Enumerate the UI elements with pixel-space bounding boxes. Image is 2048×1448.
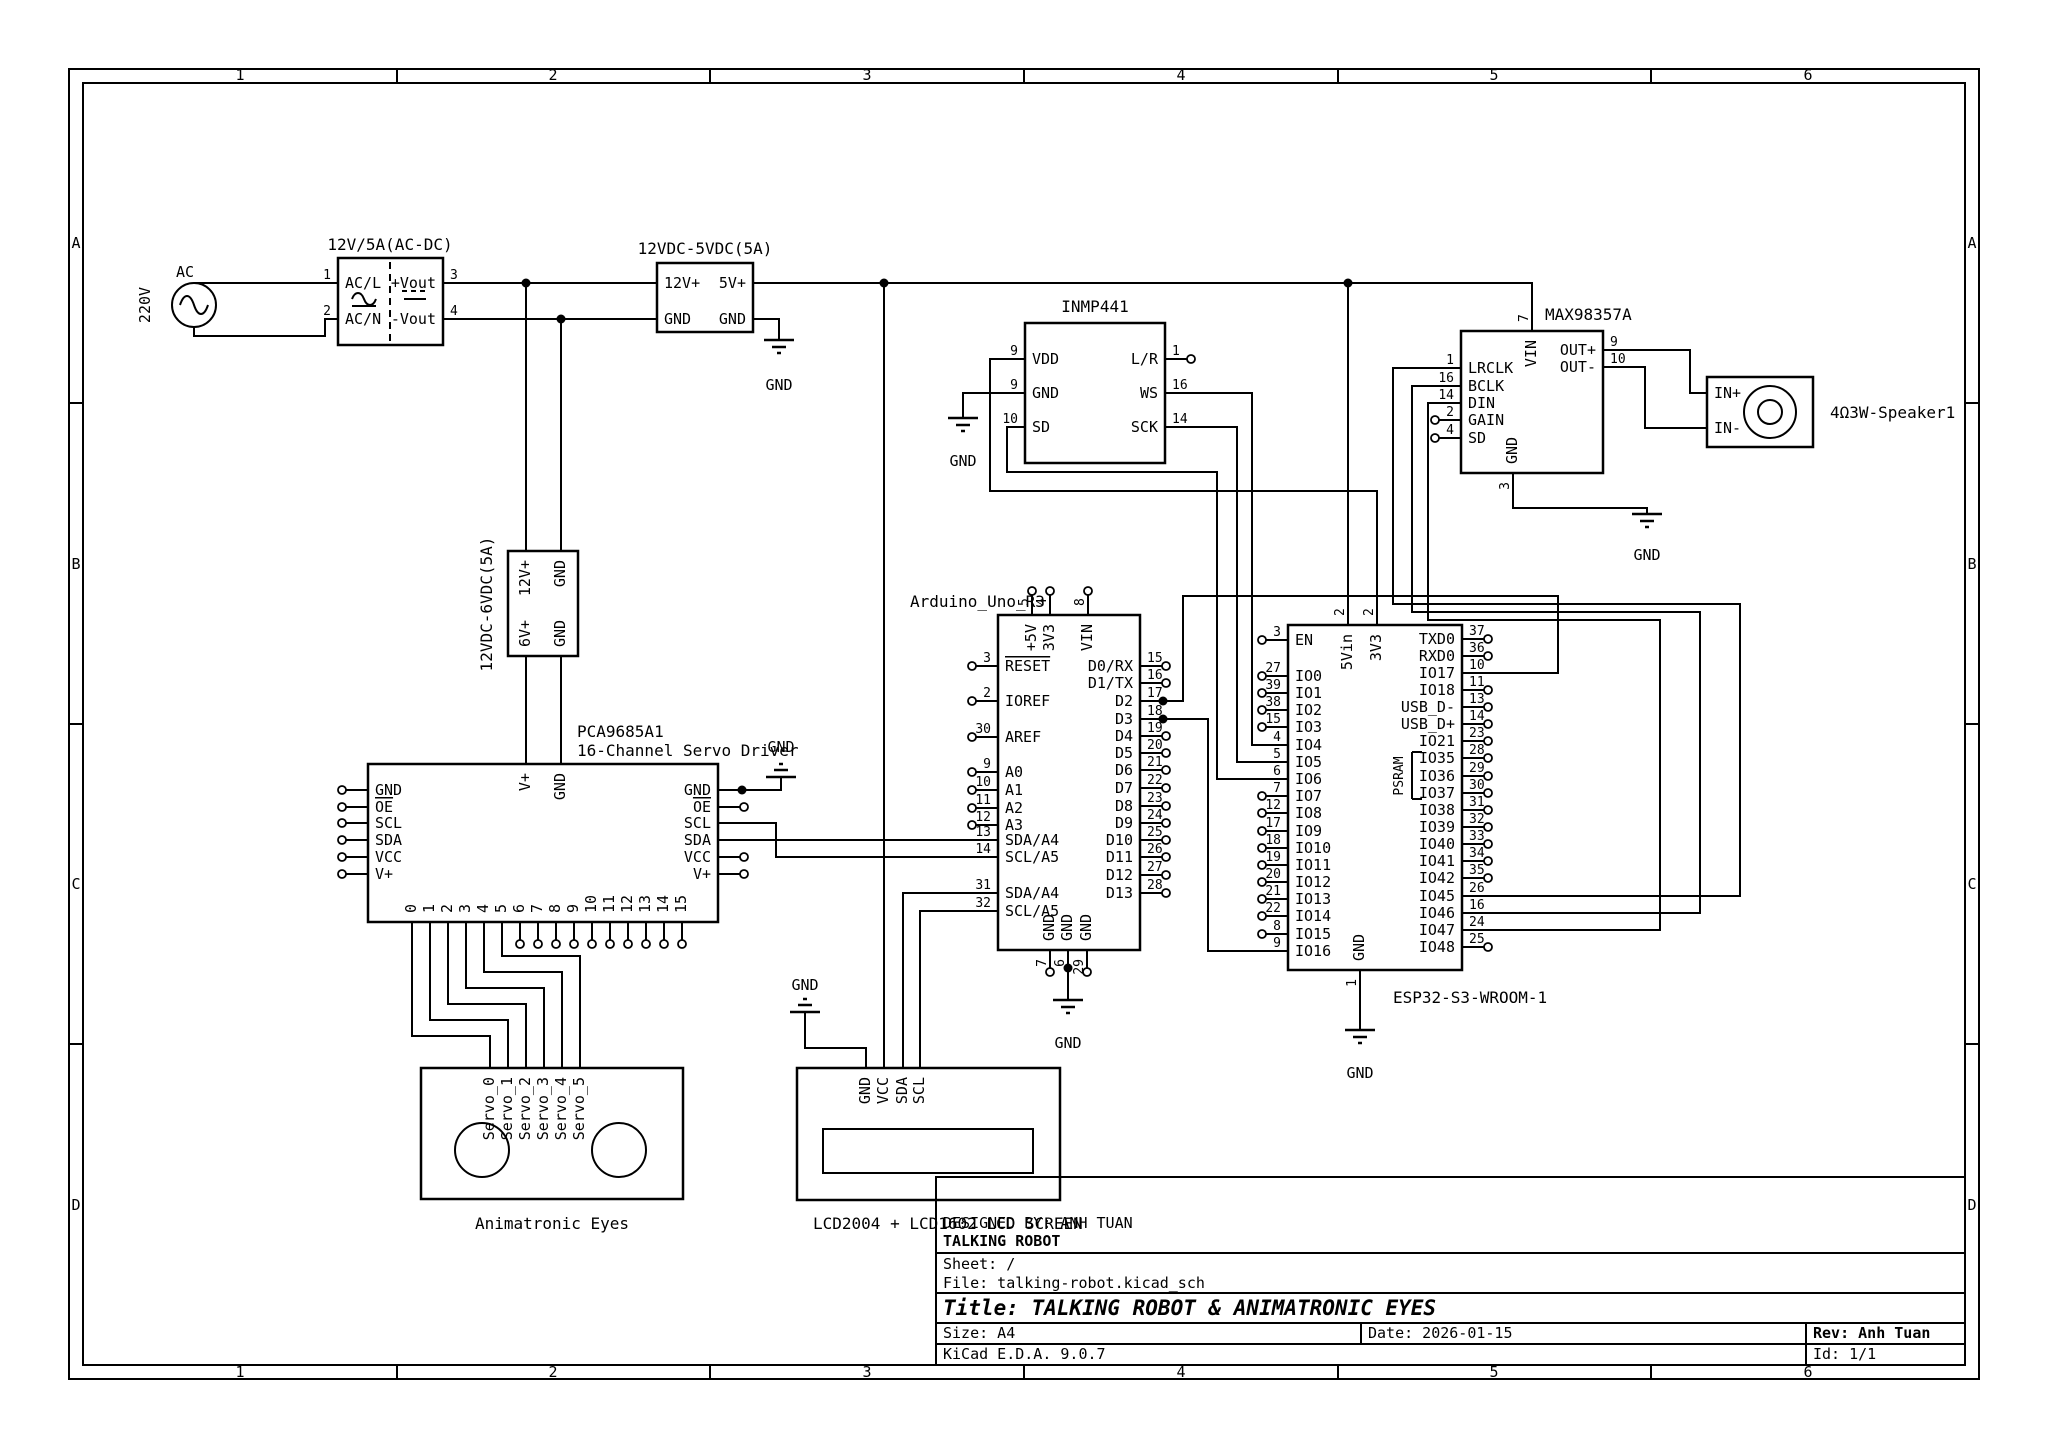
- pin-esp32-s3-wroom-1: IO47: [1419, 921, 1455, 939]
- pin-inmp441-microphone: GND: [1032, 384, 1059, 402]
- pin-esp32-s3-wroom-1: IO13: [1295, 890, 1331, 908]
- border-row-label: B: [1967, 555, 1976, 573]
- unconnected-pin-marker: [1162, 766, 1170, 774]
- pin-arduino-uno-r3: D6: [1115, 761, 1133, 779]
- pin-esp32-s3-wroom-1: IO14: [1295, 907, 1331, 925]
- unconnected-pin-marker: [1084, 587, 1092, 595]
- unconnected-pin-marker: [1162, 853, 1170, 861]
- pin-number: 15: [1265, 712, 1281, 727]
- pin-number: 3: [1273, 625, 1281, 640]
- pin-esp32-s3-wroom-1: IO46: [1419, 904, 1455, 922]
- pin-buck-12v-5v: GND: [719, 310, 746, 328]
- acdc-sine-glyph: [352, 293, 376, 305]
- border-col-label: 3: [862, 66, 871, 84]
- pin-esp32-s3-wroom-1: IO38: [1419, 801, 1455, 819]
- pin-pca9685-servo-driver: SDA: [684, 831, 711, 849]
- unconnected-pin-marker: [1484, 772, 1492, 780]
- pin-arduino-uno-r3: A2: [1005, 799, 1023, 817]
- pin-number: 29: [1469, 761, 1485, 776]
- border-col-label: 1: [235, 66, 244, 84]
- unconnected-pin-marker: [338, 819, 346, 827]
- pin-number: 18: [1265, 833, 1281, 848]
- component-title-buck-12v-5v: 12VDC-5VDC(5A): [638, 239, 773, 258]
- pin-number: 7: [1517, 314, 1532, 322]
- border-row-label: A: [1967, 234, 1976, 252]
- pin-arduino-uno-r3: D9: [1115, 814, 1133, 832]
- pin-arduino-uno-r3: SDA/A4: [1005, 884, 1059, 902]
- right-eye: [592, 1123, 646, 1177]
- pin-esp32-s3-wroom-1: 5Vin: [1338, 634, 1356, 670]
- pin-esp32-s3-wroom-1: IO37: [1419, 784, 1455, 802]
- pin-number: 16: [1172, 378, 1188, 393]
- pin-esp32-s3-wroom-1: IO10: [1295, 839, 1331, 857]
- pin-pca9685-servo-driver: 11: [600, 895, 618, 913]
- pin-number: 8: [1073, 598, 1088, 606]
- title-block-comments: DESIGNED BY: ANH TUAN TALKING ROBOT: [937, 1178, 1964, 1252]
- border-col-label: 3: [862, 1363, 871, 1381]
- wire: [920, 911, 998, 1068]
- component-title-buck-12v-6v: 12VDC-6VDC(5A): [477, 537, 496, 672]
- pin-esp32-s3-wroom-1: IO1: [1295, 684, 1322, 702]
- unconnected-pin-marker: [1028, 587, 1036, 595]
- pin-buck-12v-5v: 5V+: [719, 274, 746, 292]
- border-row-label: A: [71, 234, 80, 252]
- pin-esp32-s3-wroom-1: IO40: [1419, 835, 1455, 853]
- pin-number: 24: [1147, 808, 1163, 823]
- pin-number: 8: [1273, 919, 1281, 934]
- pin-buck-12v-6v: GND: [551, 620, 569, 647]
- lcd-glass: [823, 1129, 1033, 1173]
- pin-lcd-screen-module: VCC: [874, 1077, 892, 1104]
- pin-esp32-s3-wroom-1: IO9: [1295, 822, 1322, 840]
- pin-number: 26: [1469, 881, 1485, 896]
- wire: [753, 319, 779, 340]
- pin-number: 16: [1438, 371, 1454, 386]
- wire: [1412, 386, 1700, 913]
- pin-number: 23: [1469, 726, 1485, 741]
- pin-esp32-s3-wroom-1: GND: [1350, 934, 1368, 961]
- pin-esp32-s3-wroom-1: IO35: [1419, 749, 1455, 767]
- unconnected-pin-marker: [552, 940, 560, 948]
- component-title-max98357a-amplifier: MAX98357A: [1545, 305, 1632, 324]
- pin-number: 24: [1469, 915, 1485, 930]
- pin-number: 4: [1446, 423, 1454, 438]
- pin-number: 1: [1446, 353, 1454, 368]
- pin-arduino-uno-r3: D2: [1115, 692, 1133, 710]
- pin-number: 36: [1469, 641, 1485, 656]
- pin-inmp441-microphone: SCK: [1131, 418, 1158, 436]
- file-name: File: talking-robot.kicad_sch: [943, 1274, 1958, 1293]
- pin-number: 17: [1265, 816, 1281, 831]
- pin-number: 20: [1147, 738, 1163, 753]
- pin-esp32-s3-wroom-1: IO21: [1419, 732, 1455, 750]
- designed-by: DESIGNED BY: ANH TUAN: [943, 1214, 1958, 1232]
- pin-esp32-s3-wroom-1: IO16: [1295, 942, 1331, 960]
- unconnected-pin-marker: [588, 940, 596, 948]
- pin-number: 32: [975, 896, 991, 911]
- unconnected-pin-marker: [1484, 823, 1492, 831]
- unconnected-pin-marker: [1162, 871, 1170, 879]
- pin-acdc-converter: AC/L: [345, 274, 381, 292]
- border-col-label: 5: [1489, 66, 1498, 84]
- sheet-id: Id: 1/1: [1805, 1345, 1964, 1364]
- pin-number: 11: [1469, 675, 1485, 690]
- unconnected-pin-marker: [1046, 968, 1054, 976]
- pin-pca9685-servo-driver: V+: [693, 865, 711, 883]
- unconnected-pin-marker: [338, 853, 346, 861]
- junction-dot: [557, 315, 566, 324]
- date: Date: 2026-01-15: [1360, 1324, 1805, 1343]
- pin-number: 23: [1147, 791, 1163, 806]
- pin-acdc-converter: -Vout: [391, 310, 436, 328]
- title-block-size-row: Size: A4 Date: 2026-01-15 Rev: Anh Tuan: [937, 1322, 1964, 1343]
- pin-number: 31: [975, 878, 991, 893]
- pin-number: 33: [1469, 829, 1485, 844]
- pin-esp32-s3-wroom-1: EN: [1295, 631, 1313, 649]
- pin-number: 9: [1273, 936, 1281, 951]
- pin-number: 13: [975, 825, 991, 840]
- pin-pca9685-servo-driver: 1: [420, 904, 438, 913]
- pin-animatronic-eyes: Servo_3: [534, 1077, 552, 1140]
- pin-number: 19: [1265, 850, 1281, 865]
- gnd-label: GND: [767, 738, 794, 756]
- pin-number: 30: [1469, 778, 1485, 793]
- pin-number: 10: [975, 775, 991, 790]
- pin-number: 1: [323, 268, 331, 283]
- pin-number: 14: [1438, 388, 1454, 403]
- pin-number: 28: [1147, 878, 1163, 893]
- pin-pca9685-servo-driver: VCC: [684, 848, 711, 866]
- pin-buck-12v-5v: 12V+: [664, 274, 700, 292]
- pin-arduino-uno-r3: VIN: [1078, 624, 1096, 651]
- unconnected-pin-marker: [1162, 784, 1170, 792]
- component-title-animatronic-eyes: Animatronic Eyes: [475, 1214, 629, 1233]
- pin-number: 14: [1172, 412, 1188, 427]
- pin-lcd-screen-module: SDA: [893, 1077, 911, 1104]
- pin-animatronic-eyes: Servo_0: [480, 1077, 498, 1140]
- component-title-speaker-4ohm-3w: 4Ω3W-Speaker1: [1830, 403, 1955, 422]
- unconnected-pin-marker: [1162, 819, 1170, 827]
- border-col-label: 2: [548, 66, 557, 84]
- pin-esp32-s3-wroom-1: IO39: [1419, 818, 1455, 836]
- unconnected-pin-marker: [1484, 857, 1492, 865]
- unconnected-pin-marker: [1187, 355, 1195, 363]
- pin-max98357a-amplifier: OUT+: [1560, 341, 1596, 359]
- unconnected-pin-marker: [1484, 806, 1492, 814]
- pin-max98357a-amplifier: SD: [1468, 429, 1486, 447]
- pin-acdc-converter: +Vout: [391, 274, 436, 292]
- unconnected-pin-marker: [1484, 789, 1492, 797]
- pin-number: 22: [1147, 773, 1163, 788]
- component-title-esp32-s3-wroom-1: ESP32-S3-WROOM-1: [1393, 988, 1547, 1007]
- wire: [718, 777, 781, 790]
- unconnected-pin-marker: [534, 940, 542, 948]
- title-block-tool-row: KiCad E.D.A. 9.0.7 Id: 1/1: [937, 1343, 1964, 1364]
- pin-pca9685-servo-driver: 14: [654, 895, 672, 913]
- pin-pca9685-servo-driver: 5: [492, 904, 510, 913]
- speaker-cone-inner: [1758, 400, 1782, 424]
- unconnected-pin-marker: [1484, 754, 1492, 762]
- pin-arduino-uno-r3: D0/RX: [1088, 657, 1133, 675]
- border-row-label: C: [71, 875, 80, 893]
- pin-number: 2: [323, 304, 331, 319]
- unconnected-pin-marker: [660, 940, 668, 948]
- pin-number: 21: [1147, 755, 1163, 770]
- paper-size: Size: A4: [937, 1324, 1360, 1343]
- pin-max98357a-amplifier: OUT-: [1560, 358, 1596, 376]
- pin-esp32-s3-wroom-1: IO0: [1295, 667, 1322, 685]
- unconnected-pin-marker: [1046, 587, 1054, 595]
- pin-inmp441-microphone: SD: [1032, 418, 1050, 436]
- wire: [430, 922, 508, 1068]
- unconnected-pin-marker: [624, 940, 632, 948]
- pin-number: 34: [1469, 846, 1485, 861]
- pin-number: 4: [1035, 598, 1050, 606]
- pin-pca9685-servo-driver: 4: [474, 904, 492, 913]
- unconnected-pin-marker: [516, 940, 524, 948]
- pin-speaker-4ohm-3w: IN+: [1714, 384, 1741, 402]
- pin-animatronic-eyes: Servo_4: [552, 1077, 570, 1140]
- unconnected-pin-marker: [968, 733, 976, 741]
- pin-pca9685-servo-driver: SDA: [375, 831, 402, 849]
- pin-number: 12: [1265, 798, 1281, 813]
- pin-animatronic-eyes: Servo_5: [570, 1077, 588, 1140]
- gnd-label: GND: [1054, 1034, 1081, 1052]
- pin-esp32-s3-wroom-1: IO18: [1419, 681, 1455, 699]
- wire: [448, 922, 526, 1068]
- pin-number: 21: [1265, 884, 1281, 899]
- pin-number: 14: [975, 842, 991, 857]
- pin-acdc-converter: AC/N: [345, 310, 381, 328]
- wire: [412, 922, 490, 1068]
- pin-esp32-s3-wroom-1: IO36: [1419, 767, 1455, 785]
- pin-esp32-s3-wroom-1: RXD0: [1419, 647, 1455, 665]
- pin-pca9685-servo-driver: 2: [438, 904, 456, 913]
- border-row-label: D: [71, 1196, 80, 1214]
- pin-esp32-s3-wroom-1: TXD0: [1419, 630, 1455, 648]
- pin-pca9685-servo-driver: 7: [528, 904, 546, 913]
- unconnected-pin-marker: [1484, 737, 1492, 745]
- pin-number: 10: [1469, 658, 1485, 673]
- unconnected-pin-marker: [1258, 723, 1266, 731]
- unconnected-pin-marker: [1258, 912, 1266, 920]
- gnd-label: GND: [765, 376, 792, 394]
- unconnected-pin-marker: [338, 803, 346, 811]
- component-title-acdc-converter: 12V/5A(AC-DC): [327, 235, 452, 254]
- pin-number: 11: [975, 793, 991, 808]
- pin-number: 32: [1469, 812, 1485, 827]
- pin-inmp441-microphone: VDD: [1032, 350, 1059, 368]
- unconnected-pin-marker: [606, 940, 614, 948]
- border-row-label: B: [71, 555, 80, 573]
- pin-pca9685-servo-driver: GND: [684, 781, 711, 799]
- pin-esp32-s3-wroom-1: IO15: [1295, 925, 1331, 943]
- pin-number: 7: [1273, 781, 1281, 796]
- pin-number: 10: [1610, 352, 1626, 367]
- pin-esp32-s3-wroom-1: IO12: [1295, 873, 1331, 891]
- pin-pca9685-servo-driver: SCL: [684, 814, 711, 832]
- unconnected-pin-marker: [1162, 679, 1170, 687]
- pin-number: 6: [1273, 764, 1281, 779]
- wire: [903, 893, 998, 1068]
- border-row-label: D: [1967, 1196, 1976, 1214]
- junction-dot: [880, 279, 889, 288]
- pin-number: 4: [1273, 730, 1281, 745]
- pin-arduino-uno-r3: D8: [1115, 797, 1133, 815]
- pin-arduino-uno-r3: SCL/A5: [1005, 848, 1059, 866]
- pin-buck-12v-5v: GND: [664, 310, 691, 328]
- pin-number: 27: [1265, 661, 1281, 676]
- junction-dot: [1064, 964, 1073, 973]
- pin-number: 2: [1333, 608, 1348, 616]
- unconnected-pin-marker: [1484, 874, 1492, 882]
- pin-esp32-s3-wroom-1: IO4: [1295, 736, 1322, 754]
- gnd-label: GND: [1346, 1064, 1373, 1082]
- pin-arduino-uno-r3: A0: [1005, 763, 1023, 781]
- pin-arduino-uno-r3: D7: [1115, 779, 1133, 797]
- unconnected-pin-marker: [968, 662, 976, 670]
- unconnected-pin-marker: [1258, 636, 1266, 644]
- title-block: DESIGNED BY: ANH TUAN TALKING ROBOT Shee…: [935, 1176, 1966, 1366]
- pin-pca9685-servo-driver: 9: [564, 904, 582, 913]
- pin-esp32-s3-wroom-1: IO41: [1419, 852, 1455, 870]
- pin-arduino-uno-r3: 3V3: [1040, 624, 1058, 651]
- pin-number: 30: [975, 722, 991, 737]
- unconnected-pin-marker: [642, 940, 650, 948]
- pin-pca9685-servo-driver: V+: [375, 865, 393, 883]
- unconnected-pin-marker: [1162, 749, 1170, 757]
- unconnected-pin-marker: [338, 836, 346, 844]
- pin-max98357a-amplifier: LRCLK: [1468, 359, 1513, 377]
- pin-number: 10: [1002, 412, 1018, 427]
- pin-number: 5: [1017, 598, 1032, 606]
- pin-arduino-uno-r3: GND: [1077, 914, 1095, 941]
- pin-esp32-s3-wroom-1: IO3: [1295, 718, 1322, 736]
- border-col-label: 4: [1176, 66, 1185, 84]
- pin-pca9685-servo-driver: 10: [582, 895, 600, 913]
- junction-dot: [1159, 715, 1168, 724]
- pin-number: 37: [1469, 624, 1485, 639]
- unconnected-pin-marker: [338, 786, 346, 794]
- component-title-inmp441-microphone: INMP441: [1061, 297, 1128, 316]
- pin-arduino-uno-r3: D11: [1106, 848, 1133, 866]
- pin-esp32-s3-wroom-1: USB_D+: [1401, 715, 1455, 733]
- pin-number: 35: [1469, 863, 1485, 878]
- pin-number: 4: [450, 304, 458, 319]
- schematic-sheet: 112233445566AABBCCDD12V/5A(AC-DC)AC/L1AC…: [0, 0, 2048, 1448]
- pin-number: 27: [1147, 860, 1163, 875]
- border-row-label: C: [1967, 875, 1976, 893]
- pin-esp32-s3-wroom-1: IO48: [1419, 938, 1455, 956]
- speaker-cone-outer: [1744, 386, 1796, 438]
- unconnected-pin-marker: [740, 803, 748, 811]
- unconnected-pin-marker: [1083, 968, 1091, 976]
- pin-arduino-uno-r3: SDA/A4: [1005, 831, 1059, 849]
- pin-esp32-s3-wroom-1: IO17: [1419, 664, 1455, 682]
- wire: [1513, 473, 1647, 514]
- pin-arduino-uno-r3: IOREF: [1005, 692, 1050, 710]
- border-col-label: 2: [548, 1363, 557, 1381]
- pin-max98357a-amplifier: DIN: [1468, 394, 1495, 412]
- unconnected-pin-marker: [1162, 802, 1170, 810]
- pin-pca9685-servo-driver: GND: [375, 781, 402, 799]
- pin-pca9685-servo-driver: 15: [672, 895, 690, 913]
- pin-pca9685-servo-driver: V+: [516, 773, 534, 791]
- gnd-label: GND: [1633, 546, 1660, 564]
- unconnected-pin-marker: [338, 870, 346, 878]
- pin-inmp441-microphone: WS: [1140, 384, 1158, 402]
- sheet-title: Title: TALKING ROBOT & ANIMATRONIC EYES: [937, 1292, 1964, 1322]
- pin-number: 16: [1469, 898, 1485, 913]
- pin-esp32-s3-wroom-1: IO5: [1295, 753, 1322, 771]
- unconnected-pin-marker: [1484, 703, 1492, 711]
- pin-number: 15: [1147, 651, 1163, 666]
- unconnected-pin-marker: [678, 940, 686, 948]
- pin-pca9685-servo-driver: 3: [456, 904, 474, 913]
- pin-number: 28: [1469, 743, 1485, 758]
- pin-number: 26: [1147, 842, 1163, 857]
- pin-esp32-s3-wroom-1: 3V3: [1367, 634, 1385, 661]
- pin-lcd-screen-module: SCL: [910, 1077, 928, 1104]
- unconnected-pin-marker: [968, 697, 976, 705]
- pin-number: 9: [1610, 335, 1618, 350]
- unconnected-pin-marker: [1258, 930, 1266, 938]
- pin-pca9685-servo-driver: 8: [546, 904, 564, 913]
- border-col-label: 1: [235, 1363, 244, 1381]
- pin-arduino-uno-r3: A1: [1005, 781, 1023, 799]
- pin-esp32-s3-wroom-1: IO6: [1295, 770, 1322, 788]
- sheet-path: Sheet: /: [943, 1255, 1958, 1274]
- pin-inmp441-microphone: L/R: [1131, 350, 1159, 368]
- pin-number: 22: [1265, 901, 1281, 916]
- pin-number: 25: [1147, 825, 1163, 840]
- pin-number: 9: [1010, 344, 1018, 359]
- pin-number: 5: [1273, 747, 1281, 762]
- pin-arduino-uno-r3: RESET: [1005, 657, 1050, 675]
- pin-esp32-s3-wroom-1: IO7: [1295, 787, 1322, 805]
- wire: [805, 1012, 866, 1068]
- pin-pca9685-servo-driver: SCL: [375, 814, 402, 832]
- pin-esp32-s3-wroom-1: IO42: [1419, 869, 1455, 887]
- pin-arduino-uno-r3: D10: [1106, 831, 1133, 849]
- pin-animatronic-eyes: Servo_2: [516, 1077, 534, 1140]
- pin-number: 39: [1265, 678, 1281, 693]
- pin-max98357a-amplifier: GND: [1503, 437, 1521, 464]
- pin-pca9685-servo-driver: GND: [551, 773, 569, 800]
- unconnected-pin-marker: [1484, 840, 1492, 848]
- pin-buck-12v-6v: 12V+: [516, 560, 534, 596]
- tool-version: KiCad E.D.A. 9.0.7: [937, 1345, 1805, 1364]
- pin-arduino-uno-r3: AREF: [1005, 728, 1041, 746]
- unconnected-pin-marker: [1431, 434, 1439, 442]
- ac-label: AC: [176, 263, 194, 281]
- pin-buck-12v-6v: GND: [551, 560, 569, 587]
- pin-arduino-uno-r3: D1/TX: [1088, 674, 1133, 692]
- pin-number: 1: [1172, 344, 1180, 359]
- pin-arduino-uno-r3: D3: [1115, 710, 1133, 728]
- pin-arduino-uno-r3: D4: [1115, 727, 1133, 745]
- pin-pca9685-servo-driver: 12: [618, 895, 636, 913]
- component-title-pca9685-servo-driver: PCA9685A1: [577, 722, 664, 741]
- pin-number: 14: [1469, 709, 1485, 724]
- wire: [466, 922, 544, 1068]
- gnd-label: GND: [949, 452, 976, 470]
- border-col-label: 6: [1803, 66, 1812, 84]
- pin-number: 1: [1345, 979, 1360, 987]
- pin-pca9685-servo-driver: 0: [402, 904, 420, 913]
- pin-number: 19: [1147, 721, 1163, 736]
- unconnected-pin-marker: [1162, 889, 1170, 897]
